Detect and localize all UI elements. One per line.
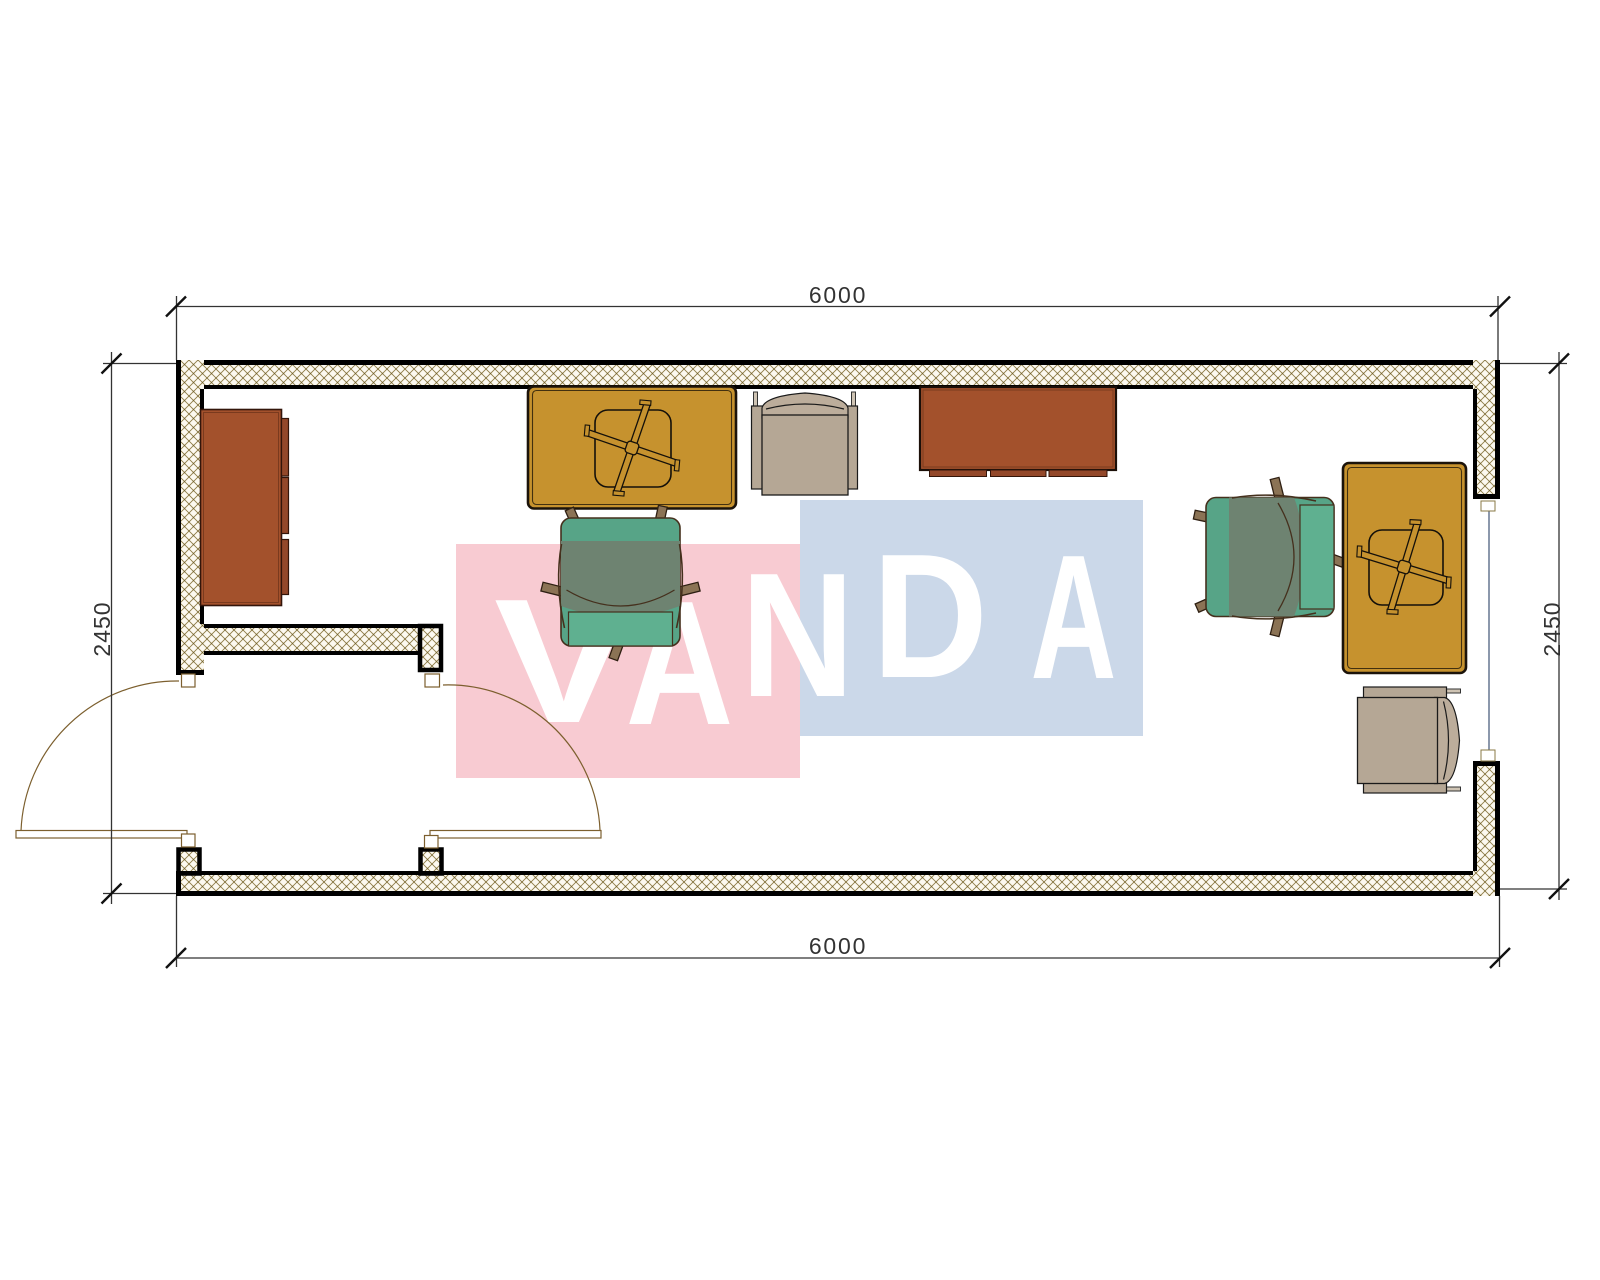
svg-text:6000: 6000 bbox=[809, 282, 867, 308]
svg-text:N: N bbox=[741, 536, 855, 734]
svg-text:2450: 2450 bbox=[1539, 601, 1565, 656]
svg-text:6000: 6000 bbox=[809, 933, 867, 959]
svg-text:2450: 2450 bbox=[89, 601, 115, 656]
svg-text:D: D bbox=[872, 517, 988, 715]
svg-text:A: A bbox=[1031, 518, 1117, 716]
